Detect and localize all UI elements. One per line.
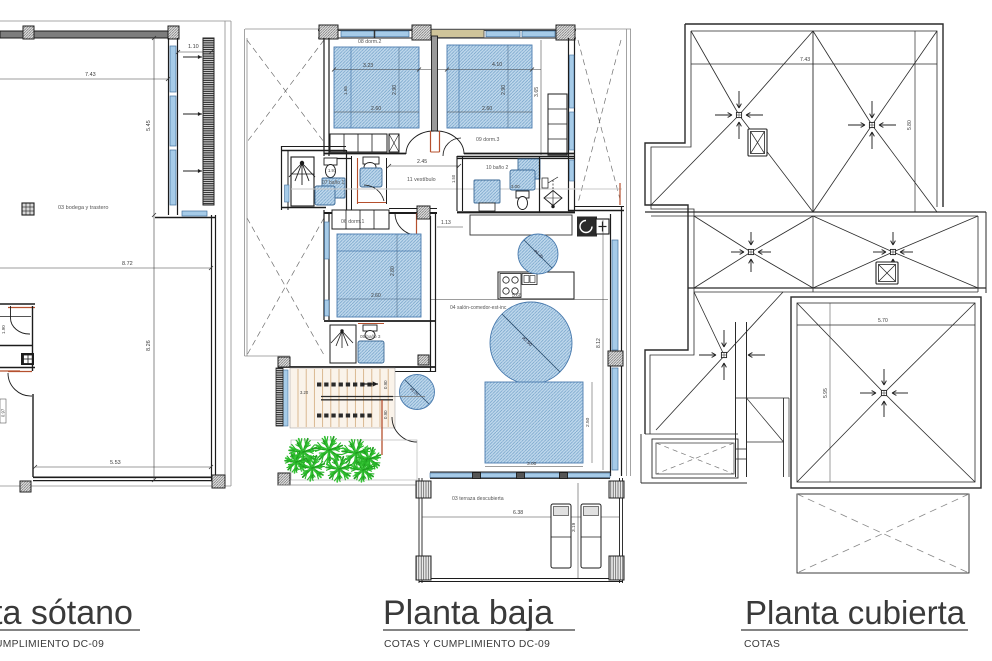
svg-text:09 dorm.3: 09 dorm.3 [476, 137, 499, 143]
svg-text:3.20: 3.20 [300, 390, 309, 395]
svg-text:03 terraza descubierta: 03 terraza descubierta [452, 496, 504, 502]
svg-text:1.91: 1.91 [328, 168, 337, 173]
svg-text:COTAS Y CUMPLIMIENTO DC-09: COTAS Y CUMPLIMIENTO DC-09 [0, 639, 104, 650]
svg-text:COTAS: COTAS [744, 639, 780, 650]
svg-text:1.13: 1.13 [441, 220, 451, 226]
svg-text:2.90: 2.90 [501, 85, 507, 95]
svg-text:1.50: 1.50 [451, 174, 456, 183]
svg-text:2.90: 2.90 [392, 85, 398, 95]
svg-text:COTAS Y CUMPLIMIENTO DC-09: COTAS Y CUMPLIMIENTO DC-09 [384, 639, 550, 650]
svg-text:06 dorm.1: 06 dorm.1 [341, 219, 364, 225]
svg-text:5.95: 5.95 [823, 388, 829, 398]
svg-text:8.26: 8.26 [146, 340, 152, 351]
svg-text:07 baño 1: 07 baño 1 [322, 180, 344, 186]
svg-text:1.10: 1.10 [188, 44, 199, 50]
svg-text:2.80: 2.80 [390, 266, 396, 276]
svg-text:0.90: 0.90 [383, 380, 388, 389]
svg-text:Planta baja: Planta baja [383, 594, 553, 632]
svg-text:2.60: 2.60 [371, 293, 381, 299]
svg-text:2.45: 2.45 [417, 159, 427, 165]
svg-text:8.12: 8.12 [596, 338, 602, 348]
svg-text:2.50: 2.50 [585, 417, 591, 427]
svg-text:1.90: 1.90 [1, 325, 6, 334]
svg-text:3.19: 3.19 [571, 522, 577, 532]
svg-text:7.43: 7.43 [85, 72, 96, 78]
svg-text:5.70: 5.70 [878, 318, 888, 324]
svg-text:7.43: 7.43 [800, 57, 810, 63]
svg-text:04 salón-comedor-est-inc: 04 salón-comedor-est-inc [450, 305, 507, 311]
svg-text:08 dorm.2: 08 dorm.2 [358, 39, 381, 45]
svg-text:5.68: 5.68 [512, 293, 522, 299]
svg-text:2.60: 2.60 [482, 106, 492, 112]
svg-text:03 bodega y trastero: 03 bodega y trastero [58, 205, 108, 211]
svg-text:4.10: 4.10 [492, 62, 502, 68]
svg-text:3.23: 3.23 [363, 63, 373, 69]
svg-text:2.60: 2.60 [371, 106, 381, 112]
svg-text:10 baño 2: 10 baño 2 [486, 165, 508, 171]
svg-text:5.53: 5.53 [110, 460, 121, 466]
svg-text:11 vestíbulo: 11 vestíbulo [407, 177, 436, 183]
svg-text:0.90: 0.90 [383, 410, 388, 419]
svg-text:3.65: 3.65 [534, 87, 540, 97]
svg-text:05 baño 3: 05 baño 3 [360, 334, 381, 339]
svg-text:3.00: 3.00 [527, 461, 537, 467]
svg-text:1.65: 1.65 [343, 86, 348, 95]
svg-text:Planta sótano: Planta sótano [0, 594, 133, 632]
svg-text:5.80: 5.80 [907, 120, 913, 130]
svg-text:3.00: 3.00 [511, 184, 520, 189]
svg-text:6.38: 6.38 [513, 510, 523, 516]
svg-text:Planta cubierta: Planta cubierta [745, 594, 966, 631]
svg-text:0.97: 0.97 [0, 408, 5, 417]
svg-text:8.72: 8.72 [122, 261, 133, 267]
svg-text:5.45: 5.45 [146, 120, 152, 131]
